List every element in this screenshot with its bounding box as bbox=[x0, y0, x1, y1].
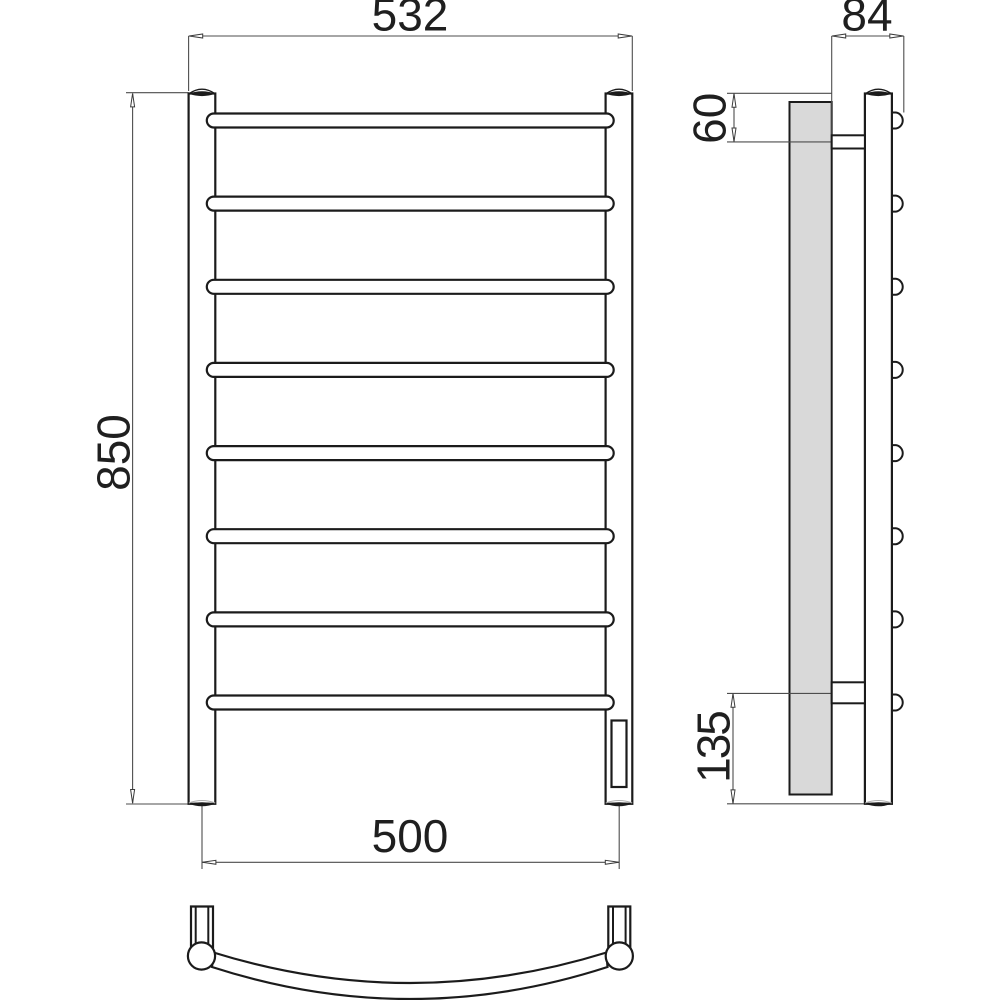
svg-text:500: 500 bbox=[372, 810, 449, 862]
svg-text:84: 84 bbox=[841, 0, 892, 41]
svg-text:532: 532 bbox=[372, 0, 449, 41]
svg-text:60: 60 bbox=[684, 93, 736, 144]
svg-text:850: 850 bbox=[88, 414, 140, 491]
svg-text:135: 135 bbox=[688, 712, 740, 783]
